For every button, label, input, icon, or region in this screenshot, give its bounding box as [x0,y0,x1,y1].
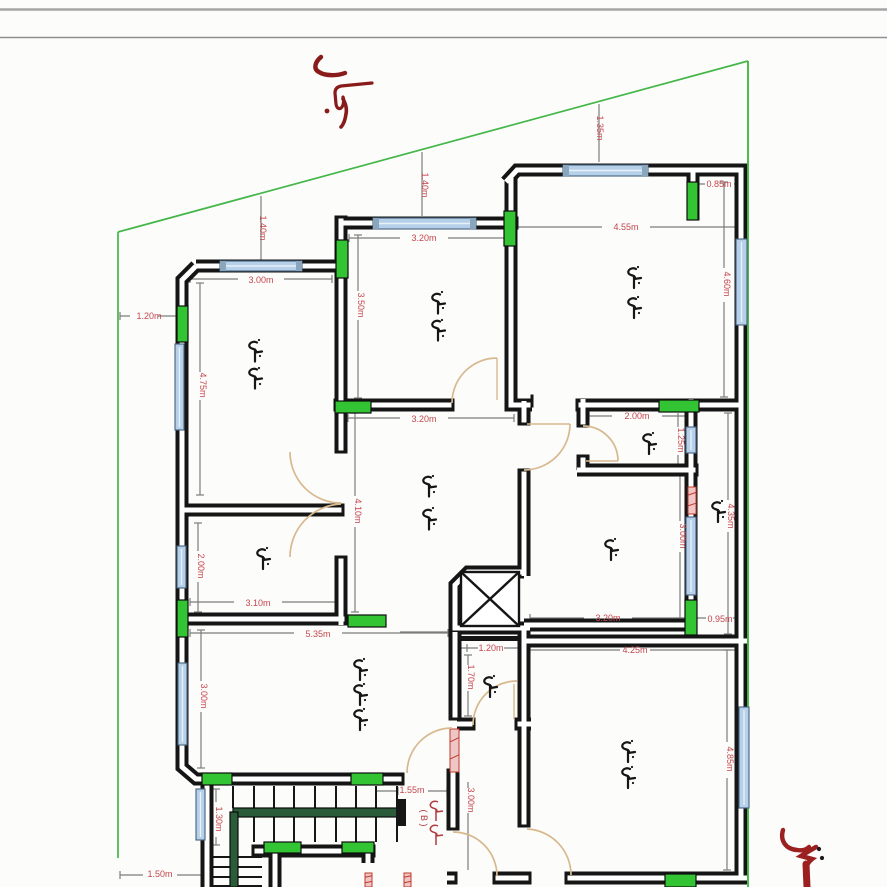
svg-text:3.00m: 3.00m [678,523,688,548]
svg-text:4.75m: 4.75m [198,372,208,397]
svg-text:3.50m: 3.50m [356,292,366,317]
svg-text:1.20m: 1.20m [478,643,503,653]
svg-text:4.10m: 4.10m [353,498,363,523]
svg-text:1.50m: 1.50m [147,869,172,879]
svg-text:1.35m: 1.35m [595,115,605,140]
svg-text:1.25m: 1.25m [676,427,686,452]
svg-text:4.35m: 4.35m [726,503,736,528]
svg-text:1.20m: 1.20m [136,311,161,321]
svg-text:4.85m: 4.85m [725,746,735,771]
svg-text:3.20m: 3.20m [411,414,436,424]
svg-text:1.70m: 1.70m [466,664,476,689]
svg-text:0.85m: 0.85m [706,179,731,189]
svg-text:1.55m: 1.55m [399,785,424,795]
svg-text:1.30m: 1.30m [214,806,224,831]
svg-text:5.35m: 5.35m [305,629,330,639]
svg-text:3.00m: 3.00m [466,787,476,812]
svg-text:3.20m: 3.20m [595,613,620,623]
svg-text:4.60m: 4.60m [722,271,732,296]
svg-text:1.40m: 1.40m [258,215,268,240]
svg-text:2.00m: 2.00m [196,553,206,578]
svg-text:4.25m: 4.25m [622,645,647,655]
svg-text:1.40m: 1.40m [420,172,430,197]
svg-text:3.00m: 3.00m [248,275,273,285]
svg-text:0.95m: 0.95m [707,614,732,624]
svg-text:3.00m: 3.00m [199,683,209,708]
svg-text:3.20m: 3.20m [411,233,436,243]
svg-text:3.10m: 3.10m [245,598,270,608]
svg-text:4.55m: 4.55m [613,222,638,232]
svg-text:2.00m: 2.00m [624,411,649,421]
svg-text:( B ): ( B ) [419,810,429,827]
